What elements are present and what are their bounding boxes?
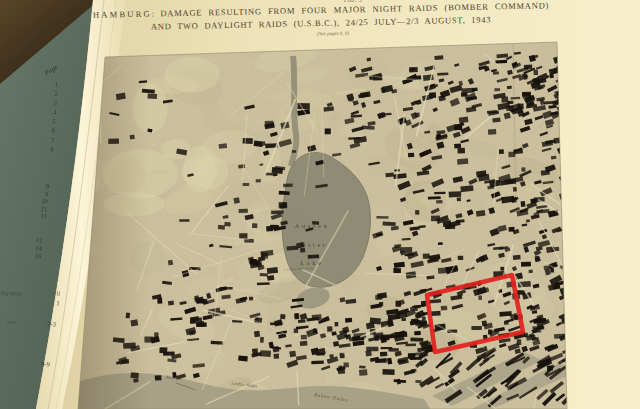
contents-fragment-between: een <box>7 319 16 325</box>
contents-numbers-mid: 9 9 10 11 11 <box>31 181 50 220</box>
book-photo: FIG. 5 HAMBURG:DAMAGE RESULTING FROM FOU… <box>0 0 640 409</box>
hamburg-damage-map <box>55 0 585 409</box>
contents-facing-numbers: ii 1 <box>43 287 60 307</box>
book-scene-canvas <box>0 0 640 409</box>
figure-title-city: HAMBURG: <box>93 8 157 19</box>
contents-numbers-low: 12 14 16 <box>25 235 43 260</box>
contents-between-number: 2-3 <box>40 319 56 327</box>
contents-last-number: 8-9 <box>34 359 50 367</box>
contents-fragment-facing: ing page <box>1 289 22 296</box>
figure-number: FIG. 5 <box>318 0 388 3</box>
lake-label: Aussen Alster Lake <box>281 217 343 273</box>
